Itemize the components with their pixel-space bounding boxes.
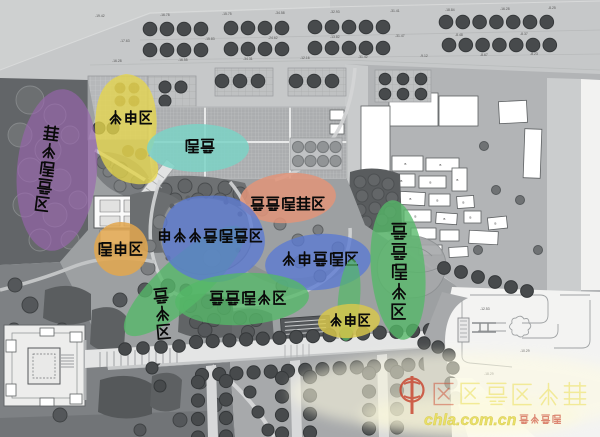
svg-text:B: B	[444, 217, 446, 221]
svg-text:-8.67: -8.67	[480, 53, 488, 57]
svg-text:B: B	[457, 178, 459, 182]
svg-text:B: B	[430, 181, 432, 185]
svg-text:-18.84: -18.84	[445, 8, 455, 12]
svg-text:-31.41: -31.41	[390, 9, 400, 13]
svg-text:-12.16: -12.16	[300, 56, 310, 60]
svg-text:B: B	[440, 163, 442, 167]
svg-text:-13.82: -13.82	[330, 35, 340, 39]
svg-text:B: B	[415, 215, 417, 219]
svg-text:B: B	[405, 162, 407, 166]
svg-text:-8.37: -8.37	[520, 32, 528, 36]
svg-text:-15.83: -15.83	[205, 37, 215, 41]
svg-text:-34.58: -34.58	[275, 11, 285, 15]
svg-text:-16.28: -16.28	[500, 7, 510, 11]
svg-text:B: B	[437, 199, 439, 203]
svg-text:-16.55: -16.55	[178, 58, 188, 62]
svg-text:B: B	[463, 201, 465, 205]
svg-text:-15.75: -15.75	[222, 12, 232, 16]
svg-text:-31.47: -31.47	[395, 34, 405, 38]
svg-text:-19.42: -19.42	[95, 14, 105, 18]
svg-text:B: B	[495, 222, 497, 226]
svg-text:-12.53: -12.53	[480, 307, 490, 311]
svg-text:-17.63: -17.63	[120, 39, 130, 43]
svg-text:-8.23: -8.23	[530, 52, 538, 56]
svg-text:-16.28: -16.28	[112, 59, 122, 63]
svg-text:-10.29: -10.29	[520, 349, 530, 353]
svg-text:-32.93: -32.93	[330, 10, 340, 14]
svg-text:-8.25: -8.25	[548, 6, 556, 10]
svg-text:B: B	[410, 197, 412, 201]
svg-text:-16.78: -16.78	[160, 13, 170, 17]
svg-text:-24.62: -24.62	[268, 36, 278, 40]
svg-text:-31.42: -31.42	[358, 55, 368, 59]
svg-text:-34.31: -34.31	[243, 57, 253, 61]
svg-text:-9.12: -9.12	[420, 54, 428, 58]
svg-text:B: B	[470, 216, 472, 220]
svg-text:B: B	[401, 179, 403, 183]
svg-text:chla.com.cn: chla.com.cn	[424, 412, 517, 429]
svg-text:-8.48: -8.48	[455, 33, 463, 37]
